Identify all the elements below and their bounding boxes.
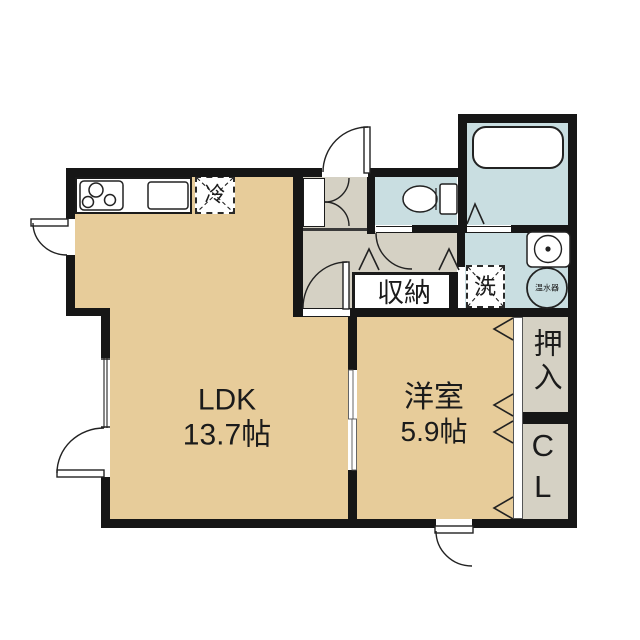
floorplan: LDK 13.7帖 洋室 5.9帖 収納 押入 CL 冷 洗 温水器 (0, 0, 640, 640)
cl-label: CL (524, 428, 561, 510)
shoe-cabinet (303, 178, 325, 227)
western-room-label: 洋室 5.9帖 (401, 380, 468, 448)
window (101, 358, 110, 428)
wall (348, 317, 357, 370)
wall (458, 114, 467, 233)
washer-label: 洗 (474, 274, 496, 300)
western-room-door-arc (435, 526, 473, 566)
wall (412, 225, 465, 233)
entrance-step-line (303, 228, 367, 231)
bathroom-doorway (466, 226, 511, 233)
kitchen-counter (75, 177, 192, 214)
wall (568, 114, 577, 528)
wall (348, 470, 357, 519)
wall (472, 519, 577, 528)
western-room-size: 5.9帖 (401, 415, 468, 448)
wall (511, 225, 577, 233)
wall (101, 519, 436, 528)
storage-label: 収納 (377, 278, 431, 310)
oshiire-label: 押入 (528, 328, 562, 396)
ldk-floor (110, 308, 293, 317)
ldk-side-door-arc (57, 428, 104, 477)
washroom-doorway (457, 267, 465, 308)
sliding-door-icon (349, 370, 357, 470)
water-heater-label: 温水器 (535, 283, 559, 292)
bathroom-floor (467, 123, 568, 225)
wall (449, 272, 458, 317)
wall (66, 168, 75, 219)
toilet-doorway (376, 226, 412, 233)
entrance-door-arc (323, 127, 370, 173)
ldk-size: 13.7帖 (183, 418, 271, 453)
ldk-hall-doorway (303, 308, 350, 317)
wall (66, 168, 322, 177)
refrigerator-label: 冷 (205, 184, 226, 209)
closet-door-strip (513, 317, 523, 519)
wall (458, 114, 577, 123)
hallway-floor (303, 272, 352, 308)
wall (101, 308, 110, 358)
wall (293, 177, 303, 317)
wall (457, 233, 465, 267)
wall (523, 412, 577, 424)
toilet-floor (375, 177, 457, 225)
wall (368, 168, 466, 177)
western-room-name: 洋室 (401, 380, 468, 415)
ldk-name: LDK (183, 383, 271, 418)
hallway-floor (303, 231, 457, 272)
wall (66, 255, 75, 316)
wall (367, 177, 375, 234)
ldk-label: LDK 13.7帖 (183, 383, 271, 454)
kitchen-side-door-arc (31, 219, 68, 255)
